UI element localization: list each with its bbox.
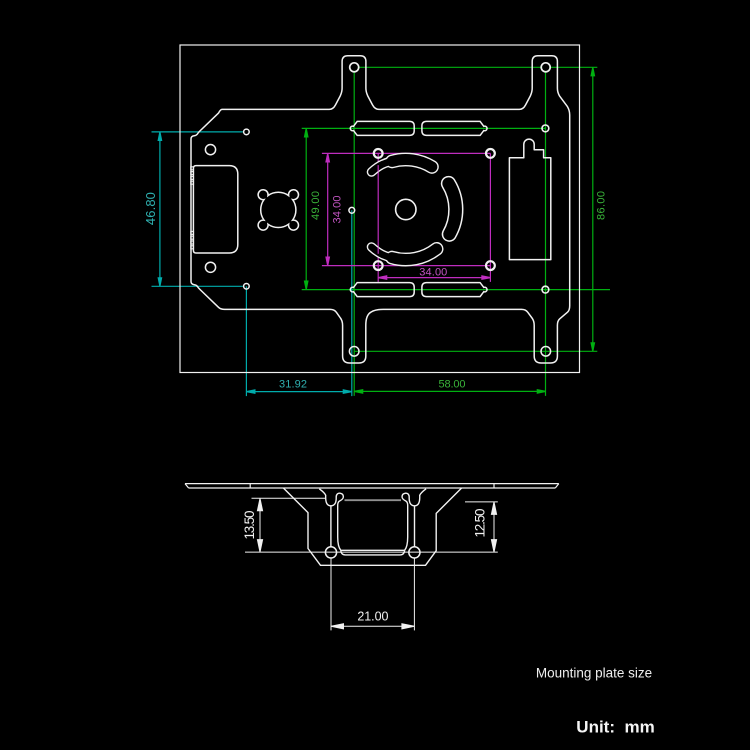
svg-text:Unit: mm: Unit: mm: [576, 718, 654, 737]
svg-text:34.00: 34.00: [419, 266, 447, 278]
svg-text:13.50: 13.50: [242, 511, 257, 540]
svg-text:Mounting plate size: Mounting plate size: [536, 666, 652, 681]
svg-text:49.00: 49.00: [310, 191, 322, 220]
svg-text:21.00: 21.00: [357, 609, 388, 623]
svg-text:34.00: 34.00: [331, 196, 343, 224]
svg-text:86.00: 86.00: [595, 191, 607, 220]
svg-text:58.00: 58.00: [439, 378, 466, 390]
svg-text:12.50: 12.50: [472, 509, 487, 538]
svg-text:46.80: 46.80: [143, 192, 158, 225]
svg-text:31.92: 31.92: [279, 379, 307, 391]
